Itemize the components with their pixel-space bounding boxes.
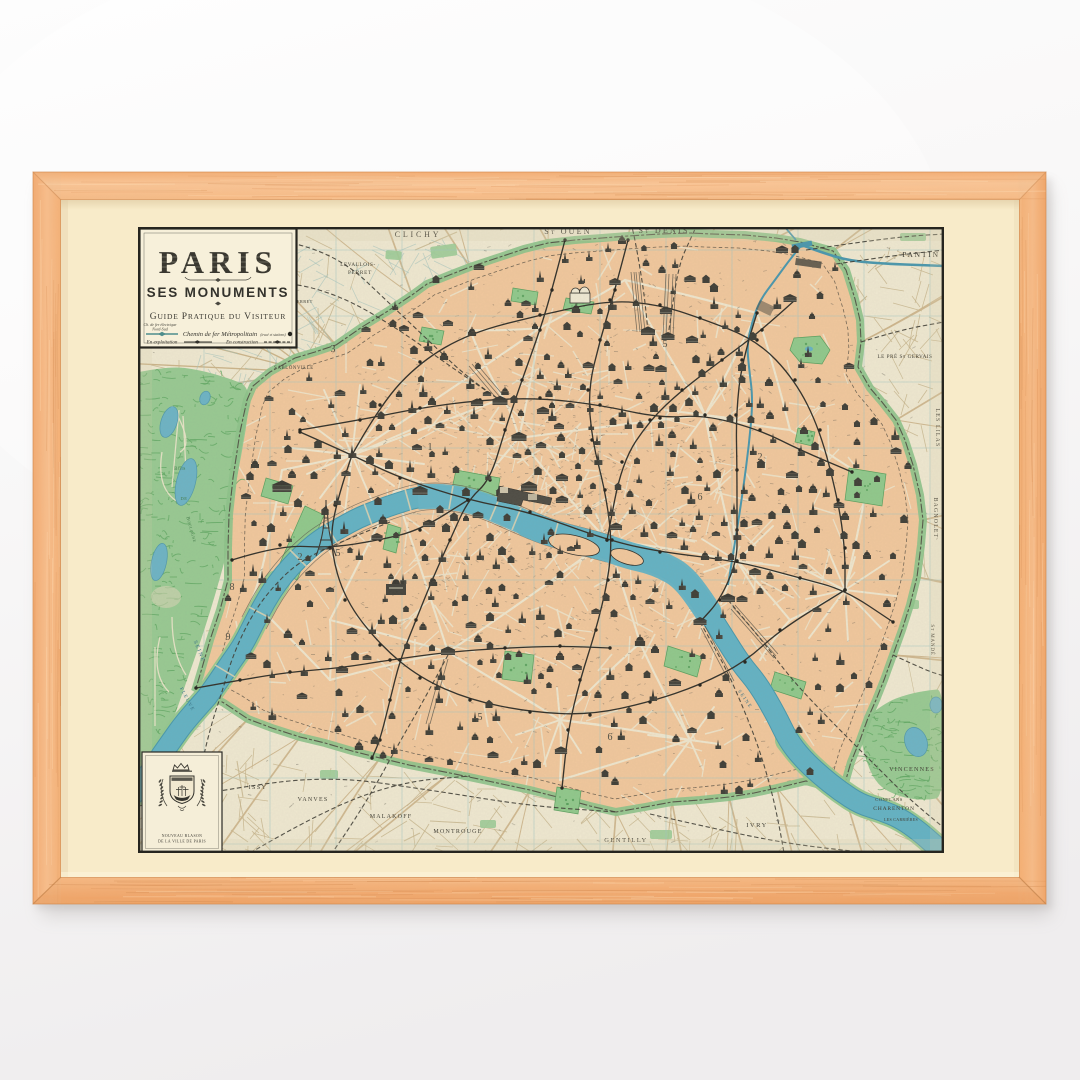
- svg-text:DE LA VILLE DE PARIS: DE LA VILLE DE PARIS: [158, 840, 206, 844]
- svg-text:Chemin de fer Métropolitain: Chemin de fer Métropolitain: [183, 331, 257, 338]
- svg-text:En exploitation: En exploitation: [146, 341, 178, 346]
- svg-text:NOUVEAU BLASON: NOUVEAU BLASON: [162, 834, 203, 838]
- svg-text:En construction: En construction: [225, 341, 258, 346]
- svg-text:GUIDE PRATIQUE DU VISITEUR: GUIDE PRATIQUE DU VISITEUR: [150, 312, 286, 322]
- svg-text:SES MONUMENTS: SES MONUMENTS: [147, 285, 290, 300]
- svg-text:(tracé et stations): (tracé et stations): [260, 333, 286, 337]
- svg-text:Nord-Sud: Nord-Sud: [151, 327, 168, 332]
